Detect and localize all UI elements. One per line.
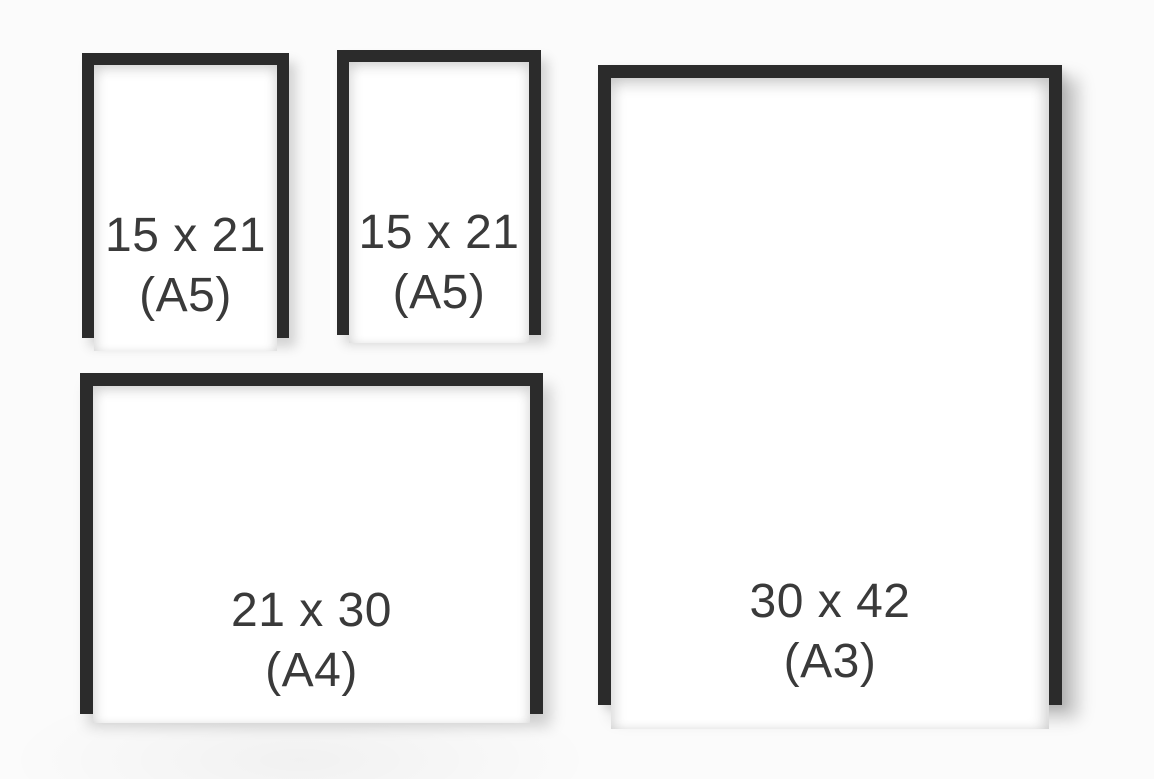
frame-a5-right: 15 x 21 (A5) <box>337 50 541 335</box>
size-label: 21 x 30 <box>231 581 392 641</box>
format-label: (A3) <box>750 632 911 692</box>
format-label: (A5) <box>105 266 266 326</box>
frame-a5-left-paper: 15 x 21 (A5) <box>94 65 277 351</box>
frame-a4-paper: 21 x 30 (A4) <box>93 386 530 723</box>
frame-size-diagram: 15 x 21 (A5) 15 x 21 (A5) 30 x 42 (A3) 2… <box>0 0 1154 779</box>
size-label: 15 x 21 <box>359 203 520 263</box>
frame-a5-left: 15 x 21 (A5) <box>82 53 289 338</box>
frame-a5-right-label: 15 x 21 (A5) <box>359 203 520 323</box>
size-label: 30 x 42 <box>750 572 911 632</box>
format-label: (A4) <box>231 641 392 701</box>
frame-a4: 21 x 30 (A4) <box>80 373 543 714</box>
frame-a5-right-paper: 15 x 21 (A5) <box>349 62 529 343</box>
frame-a3-paper: 30 x 42 (A3) <box>611 78 1049 729</box>
frame-a3-label: 30 x 42 (A3) <box>750 572 911 692</box>
frame-a3: 30 x 42 (A3) <box>598 65 1062 705</box>
frame-a4-label: 21 x 30 (A4) <box>231 581 392 701</box>
format-label: (A5) <box>359 263 520 323</box>
frame-a5-left-label: 15 x 21 (A5) <box>105 206 266 326</box>
size-label: 15 x 21 <box>105 206 266 266</box>
